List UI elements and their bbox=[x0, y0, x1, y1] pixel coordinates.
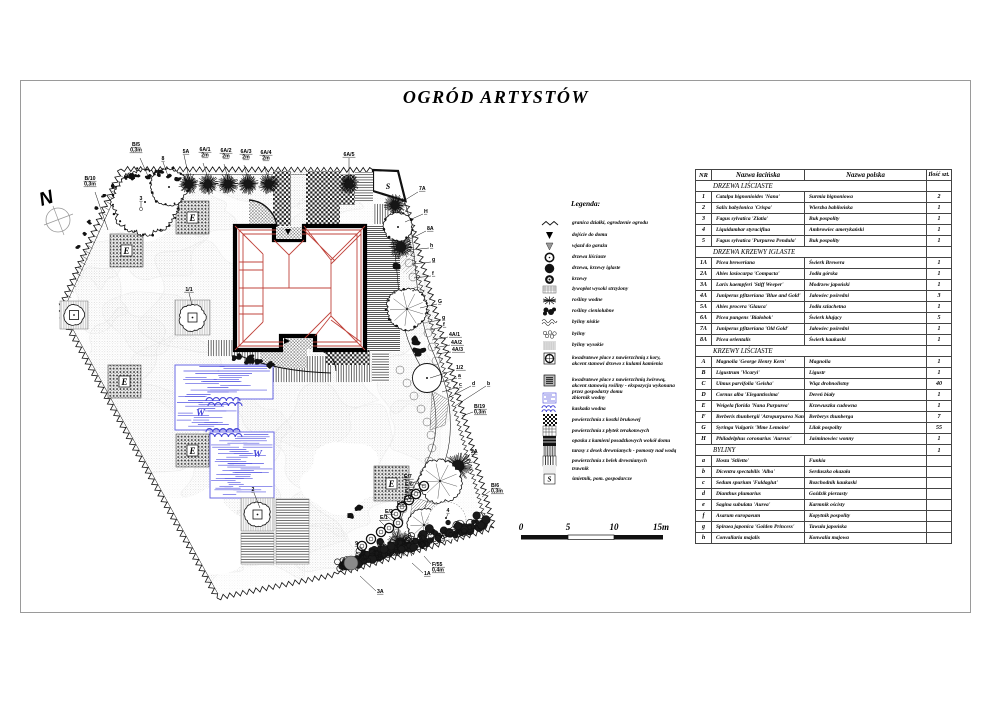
svg-text:15m: 15m bbox=[653, 522, 669, 532]
svg-text:E: E bbox=[188, 213, 195, 223]
svg-text:N: N bbox=[37, 186, 58, 211]
svg-text:E: E bbox=[188, 446, 195, 456]
svg-text:10: 10 bbox=[610, 522, 620, 532]
svg-text:W: W bbox=[196, 408, 206, 419]
svg-text:E: E bbox=[387, 479, 394, 489]
svg-text:S: S bbox=[386, 182, 391, 191]
svg-text:E: E bbox=[120, 377, 127, 387]
svg-text:5: 5 bbox=[566, 522, 571, 532]
svg-text:S: S bbox=[548, 476, 552, 484]
svg-text:E: E bbox=[122, 246, 129, 256]
svg-text:0: 0 bbox=[519, 522, 524, 532]
svg-text:W: W bbox=[253, 449, 263, 460]
